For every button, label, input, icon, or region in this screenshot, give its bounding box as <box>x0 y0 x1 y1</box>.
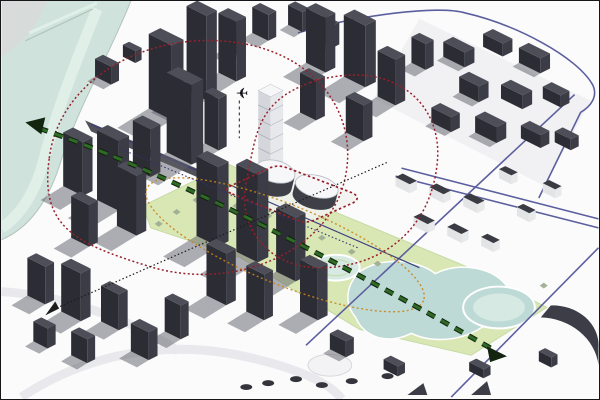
face-right <box>365 20 376 87</box>
building-mass <box>246 261 273 320</box>
airplane-icon: ✈ <box>236 85 249 103</box>
face-right <box>258 170 269 263</box>
face-right <box>48 324 56 348</box>
face-right <box>81 269 91 322</box>
face-right <box>364 101 373 141</box>
building-mass <box>101 281 128 330</box>
building-mass <box>27 253 54 304</box>
building-mass <box>411 33 433 70</box>
face-right <box>119 290 128 330</box>
building-mass <box>61 259 90 321</box>
face-right <box>226 249 236 306</box>
face-right <box>181 301 189 339</box>
building-mass <box>346 92 373 141</box>
face-right <box>326 13 336 73</box>
face-left <box>117 166 137 235</box>
urban-analysis-diagram: ✈ <box>0 0 600 400</box>
face-left <box>167 73 192 165</box>
face-right <box>271 91 283 169</box>
face-right <box>236 17 246 82</box>
face-right <box>192 79 204 164</box>
shrub <box>290 376 302 382</box>
shrub <box>382 373 394 379</box>
face-left <box>206 244 226 305</box>
axonometric-scene: ✈ <box>1 1 599 399</box>
face-left <box>61 264 81 322</box>
face-left <box>300 73 316 121</box>
building-mass <box>204 88 226 151</box>
shrub <box>240 384 252 390</box>
face-left <box>344 15 365 87</box>
face-right <box>395 55 405 106</box>
face-left <box>306 8 326 72</box>
face-right <box>206 10 217 100</box>
building-mass <box>236 159 268 263</box>
face-right <box>149 328 158 360</box>
face-left <box>197 156 218 246</box>
face-right <box>318 264 328 321</box>
building-mass <box>63 127 92 195</box>
shrub <box>316 382 328 388</box>
face-right <box>45 262 54 304</box>
building-mass <box>167 67 204 165</box>
shrub <box>262 380 274 386</box>
face-left <box>97 130 118 210</box>
shrub <box>346 378 358 384</box>
face-right <box>268 11 276 41</box>
face-right <box>426 40 434 70</box>
face-left <box>204 92 218 151</box>
building-mass <box>165 294 189 340</box>
face-right <box>137 171 147 236</box>
building-mass <box>378 46 406 106</box>
circular-pond-inner <box>473 294 525 322</box>
face-right <box>219 95 227 151</box>
face-right <box>87 335 95 363</box>
building-mass <box>71 192 98 247</box>
face-left <box>218 13 236 82</box>
face-left <box>300 260 318 321</box>
building-mass <box>306 3 335 72</box>
face-right <box>89 200 98 246</box>
building-mass <box>117 161 146 235</box>
white-site-tower <box>258 84 283 168</box>
face-right <box>264 270 273 320</box>
building-mass <box>218 8 246 81</box>
building-mass <box>300 255 328 320</box>
face-left <box>258 91 270 169</box>
building-mass <box>197 151 229 247</box>
face-right <box>151 124 161 177</box>
face-left <box>246 266 264 321</box>
